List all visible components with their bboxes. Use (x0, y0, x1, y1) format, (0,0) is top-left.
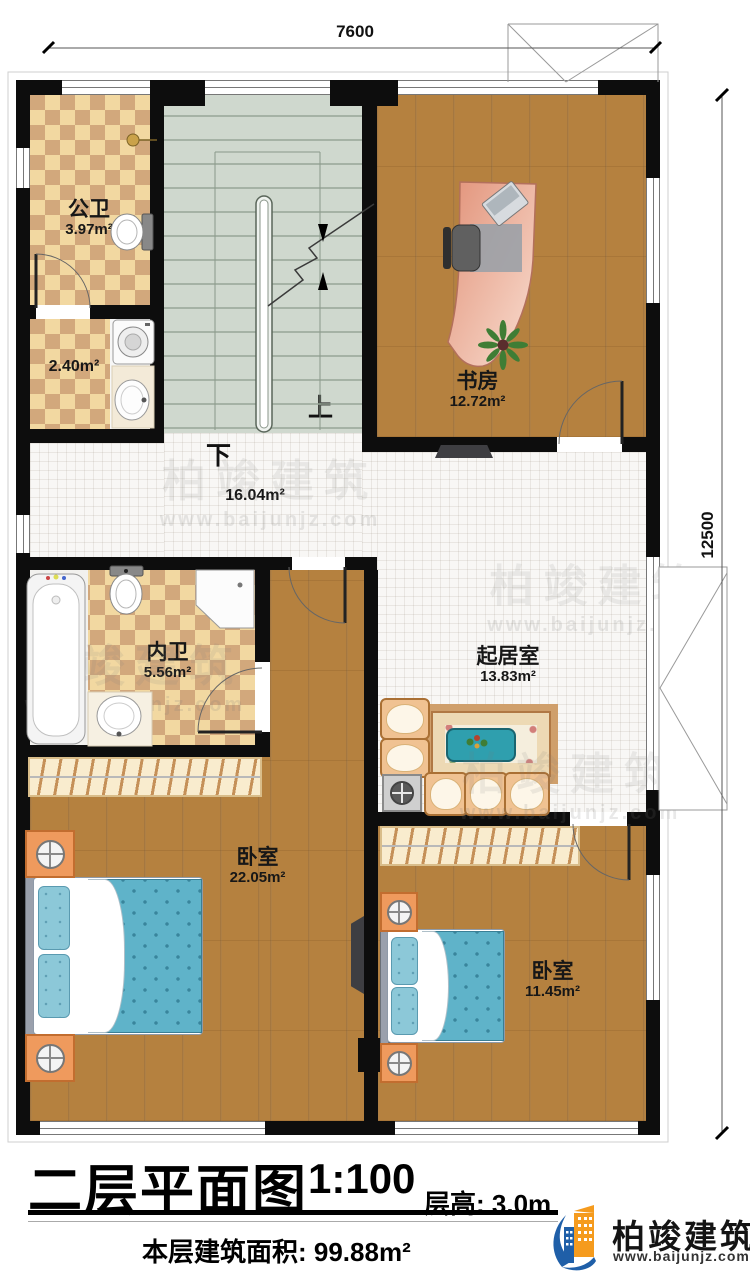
label-public-bath: 公卫 3.97m² (30, 198, 148, 238)
room-name: 公卫 (30, 198, 148, 222)
hallway-floor-filler (362, 452, 377, 557)
wall-ensuite-bottom (16, 745, 270, 757)
room-name: 卧室 (490, 960, 615, 984)
wall-living-bedroom2-b (627, 812, 646, 826)
sofa-cushion (510, 778, 544, 810)
wall-stairs-study (362, 95, 377, 452)
label-hallway: 16.04m² (200, 487, 310, 505)
wall-hall-ensuite-b (345, 557, 377, 570)
sofa-seat-left-2 (380, 738, 430, 778)
wall-publicbath-laundry-b (90, 305, 164, 319)
lamp-icon (387, 1051, 412, 1076)
master-tv (351, 916, 364, 994)
hallway-tv (435, 445, 493, 458)
room-name: 书房 (430, 370, 525, 394)
window-left-hallway (16, 515, 30, 553)
room-area: 12.72m² (430, 394, 525, 411)
window-top-study (398, 80, 598, 95)
label-second-bedroom: 卧室 11.45m² (490, 960, 615, 1000)
sofa-cushion (470, 778, 502, 810)
room-area: 22.05m² (195, 870, 320, 887)
window-right-study (646, 178, 660, 303)
wall-publicbath-laundry-a (16, 305, 36, 319)
room-area: 2.40m² (20, 358, 128, 376)
window-top-publicbath (62, 80, 150, 95)
master-wardrobe (28, 757, 262, 797)
window-top-stairs (205, 80, 330, 95)
label-study: 书房 12.72m² (430, 370, 525, 410)
sofa-seat-left-1 (380, 698, 430, 740)
stairs-up-label: 上 (308, 388, 333, 424)
sofa-seat-bottom-1 (424, 772, 468, 816)
room-name: 起居室 (448, 645, 568, 669)
floor-area-label: 本层建筑面积: 99.88m² (142, 1232, 411, 1269)
room-area: 13.83m² (448, 669, 568, 686)
master-nightstand-bottom (25, 1034, 75, 1082)
second-nightstand-bottom (380, 1043, 418, 1083)
hallway-floor-under-laundry (30, 443, 164, 557)
stairs-floor (164, 95, 362, 433)
lamp-icon (36, 840, 65, 869)
room-area: 3.97m² (30, 222, 148, 239)
floor-height-label: 层高: 3.0m (424, 1184, 551, 1221)
coffee-table (446, 728, 516, 762)
window-right-living (646, 557, 660, 790)
sofa-cushion (386, 704, 424, 734)
lamp-icon (36, 1044, 65, 1073)
lamp-icon (387, 900, 412, 925)
room-name: 内卫 (110, 641, 225, 665)
label-living-room: 起居室 13.83m² (448, 645, 568, 685)
sofa-cushion (430, 778, 462, 810)
label-ensuite-bath: 内卫 5.56m² (110, 641, 225, 681)
wall-ensuite-right-a (255, 570, 270, 662)
label-laundry: 2.40m² (20, 358, 128, 376)
wall-study-hall-b (622, 437, 646, 452)
label-master-bedroom: 卧室 22.05m² (195, 846, 320, 886)
dimension-top-value: 7600 (300, 22, 410, 42)
logo-website-text: www.baijunjz.com (613, 1248, 750, 1264)
room-name: 卧室 (195, 846, 320, 870)
stairs-down-label: 下 (206, 436, 231, 472)
sofa-seat-bottom-2 (464, 772, 508, 816)
table-lamp-icon (390, 781, 414, 805)
second-nightstand-top (380, 892, 418, 932)
sofa-side-table (382, 774, 422, 812)
plan-scale: 1:100 (308, 1155, 415, 1203)
window-bottom-master (40, 1121, 265, 1135)
ensuite-tub-zone (30, 570, 88, 745)
second-wardrobe (380, 826, 580, 866)
master-bed-pillow-2 (38, 954, 70, 1018)
wall-bath-stairs (150, 95, 164, 443)
wall-hall-ensuite-a (16, 557, 292, 570)
master-nightstand-top (25, 830, 75, 878)
master-bed-sheet-fold (88, 879, 125, 1033)
window-right-bedroom2 (646, 875, 660, 1000)
second-bed-pillow-2 (391, 987, 418, 1035)
floorplan-canvas: 公卫 3.97m² 2.40m² 书房 12.72m² 16.04m² 内卫 5… (0, 0, 750, 1277)
room-area: 16.04m² (200, 487, 310, 505)
dimension-right-value: 12500 (698, 495, 718, 575)
logo-icon (548, 1203, 608, 1273)
room-area: 11.45m² (490, 984, 615, 1001)
window-bottom-bedroom2 (395, 1121, 638, 1135)
sofa-seat-bottom-3 (504, 772, 550, 816)
wall-laundry-hall (16, 429, 164, 443)
second-bed-pillow-1 (391, 937, 418, 985)
title-underline-thin (28, 1221, 558, 1222)
logo: 柏竣建筑 www.baijunjz.com (548, 1200, 748, 1275)
room-area: 5.56m² (110, 665, 225, 682)
wall-ensuite-right-b (255, 732, 270, 745)
sofa-cushion (386, 744, 424, 772)
window-left-publicbath (16, 148, 30, 188)
master-bed-pillow-1 (38, 886, 70, 950)
